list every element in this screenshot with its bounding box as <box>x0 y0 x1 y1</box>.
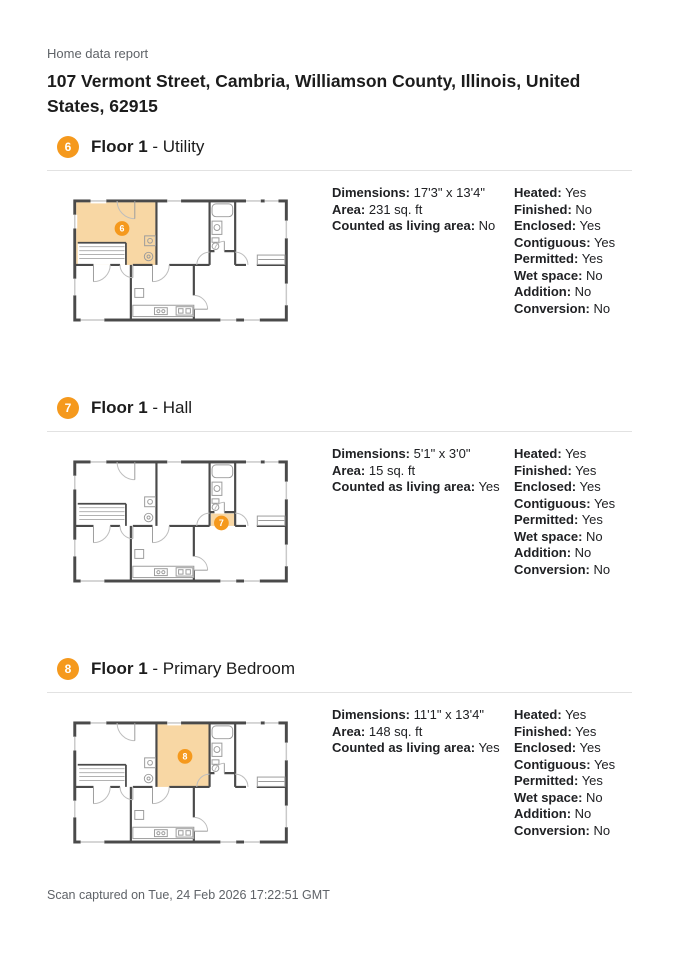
fact-label: Area: <box>332 202 365 217</box>
fact-value: No <box>575 545 592 560</box>
fact-label: Addition: <box>514 806 571 821</box>
fact-row: Area: 15 sq. ft <box>332 463 514 480</box>
fact-value: Yes <box>582 512 603 527</box>
section-title: Floor 1 - Primary Bedroom <box>91 659 295 679</box>
fact-label: Wet space: <box>514 790 582 805</box>
fact-label: Addition: <box>514 284 571 299</box>
section-title-floor: Floor 1 <box>91 137 148 156</box>
fact-row: Conversion: No <box>514 301 632 318</box>
report-label: Home data report <box>47 46 632 62</box>
floor-plan: 6 <box>47 185 332 333</box>
room-flags: Heated: Yes Finished: Yes Enclosed: Yes … <box>514 707 632 855</box>
section-title-floor: Floor 1 <box>91 398 148 417</box>
section-header: 6 Floor 1 - Utility <box>57 136 632 158</box>
address-line-1: 107 Vermont Street, Cambria, Williamson … <box>47 69 647 94</box>
divider <box>47 170 632 171</box>
fact-label: Addition: <box>514 545 571 560</box>
fact-row: Dimensions: 17'3" x 13'4" <box>332 185 514 202</box>
divider <box>47 431 632 432</box>
fact-value: 231 sq. ft <box>369 202 422 217</box>
section-header: 8 Floor 1 - Primary Bedroom <box>57 658 632 680</box>
fact-value: Yes <box>580 218 601 233</box>
section-title-room: - Hall <box>148 398 192 417</box>
fact-row: Permitted: Yes <box>514 512 632 529</box>
fact-label: Dimensions: <box>332 185 410 200</box>
fact-value: Yes <box>575 463 596 478</box>
fact-value: Yes <box>580 740 601 755</box>
fact-row: Finished: Yes <box>514 724 632 741</box>
fact-label: Area: <box>332 724 365 739</box>
fact-label: Wet space: <box>514 268 582 283</box>
fact-row: Wet space: No <box>514 529 632 546</box>
fact-row: Conversion: No <box>514 823 632 840</box>
fact-value: No <box>586 268 603 283</box>
fact-label: Conversion: <box>514 562 590 577</box>
fact-label: Counted as living area: <box>332 479 475 494</box>
section-number-badge: 8 <box>57 658 79 680</box>
floor-plan-image: 7 <box>61 446 307 594</box>
section-title-room: - Primary Bedroom <box>148 659 295 678</box>
fact-value: No <box>575 284 592 299</box>
fact-row: Heated: Yes <box>514 446 632 463</box>
fact-label: Conversion: <box>514 823 590 838</box>
fact-value: Yes <box>582 251 603 266</box>
section-header: 7 Floor 1 - Hall <box>57 397 632 419</box>
fact-label: Permitted: <box>514 251 578 266</box>
fact-value: Yes <box>594 757 615 772</box>
fact-label: Dimensions: <box>332 707 410 722</box>
fact-label: Finished: <box>514 463 572 478</box>
fact-value: No <box>593 301 610 316</box>
floor-plan: 7 <box>47 446 332 594</box>
fact-label: Enclosed: <box>514 218 576 233</box>
section-number-badge: 6 <box>57 136 79 158</box>
svg-text:8: 8 <box>183 752 188 762</box>
fact-row: Finished: No <box>514 202 632 219</box>
fact-label: Wet space: <box>514 529 582 544</box>
fact-value: Yes <box>575 724 596 739</box>
section-title: Floor 1 - Utility <box>91 137 204 157</box>
fact-row: Enclosed: Yes <box>514 218 632 235</box>
fact-label: Contiguous: <box>514 496 591 511</box>
fact-label: Finished: <box>514 202 572 217</box>
fact-value: No <box>593 562 610 577</box>
fact-value: Yes <box>594 235 615 250</box>
fact-value: Yes <box>582 773 603 788</box>
fact-value: Yes <box>565 707 586 722</box>
section-body: 6 Dimensions: 17'3" x 13'4" Area: 231 sq… <box>47 185 632 333</box>
fact-value: 15 sq. ft <box>369 463 415 478</box>
svg-text:6: 6 <box>120 224 125 234</box>
floor-plan: 8 <box>47 707 332 855</box>
section-title-room: - Utility <box>148 137 205 156</box>
room-section-primary-bedroom: 8 Floor 1 - Primary Bedroom 8 Dimensions… <box>47 658 632 855</box>
room-details: Dimensions: 17'3" x 13'4" Area: 231 sq. … <box>332 185 514 333</box>
svg-text:7: 7 <box>219 518 224 528</box>
fact-value: Yes <box>580 479 601 494</box>
fact-row: Permitted: Yes <box>514 251 632 268</box>
fact-row: Addition: No <box>514 284 632 301</box>
fact-label: Heated: <box>514 707 562 722</box>
scan-timestamp: Scan captured on Tue, 24 Feb 2026 17:22:… <box>47 888 632 903</box>
fact-row: Contiguous: Yes <box>514 757 632 774</box>
room-flags: Heated: Yes Finished: Yes Enclosed: Yes … <box>514 446 632 594</box>
fact-label: Conversion: <box>514 301 590 316</box>
floor-plan-svg: 7 <box>61 446 307 594</box>
fact-row: Addition: No <box>514 806 632 823</box>
fact-label: Counted as living area: <box>332 218 475 233</box>
room-details: Dimensions: 5'1" x 3'0" Area: 15 sq. ft … <box>332 446 514 594</box>
fact-row: Heated: Yes <box>514 707 632 724</box>
fact-row: Contiguous: Yes <box>514 235 632 252</box>
floor-plan-image: 8 <box>61 707 307 855</box>
fact-row: Dimensions: 5'1" x 3'0" <box>332 446 514 463</box>
fact-row: Conversion: No <box>514 562 632 579</box>
floor-plan-svg: 6 <box>61 185 307 333</box>
fact-label: Contiguous: <box>514 235 591 250</box>
fact-label: Heated: <box>514 185 562 200</box>
report-page: Home data report 107 Vermont Street, Cam… <box>0 0 679 903</box>
fact-row: Permitted: Yes <box>514 773 632 790</box>
fact-value: Yes <box>565 446 586 461</box>
fact-row: Addition: No <box>514 545 632 562</box>
fact-row: Area: 231 sq. ft <box>332 202 514 219</box>
fact-label: Heated: <box>514 446 562 461</box>
fact-row: Counted as living area: Yes <box>332 479 514 496</box>
fact-row: Wet space: No <box>514 268 632 285</box>
fact-row: Area: 148 sq. ft <box>332 724 514 741</box>
fact-label: Counted as living area: <box>332 740 475 755</box>
fact-row: Counted as living area: Yes <box>332 740 514 757</box>
fact-row: Enclosed: Yes <box>514 479 632 496</box>
section-title: Floor 1 - Hall <box>91 398 192 418</box>
fact-row: Finished: Yes <box>514 463 632 480</box>
fact-label: Dimensions: <box>332 446 410 461</box>
fact-label: Permitted: <box>514 773 578 788</box>
fact-value: 11'1" x 13'4" <box>414 707 484 722</box>
floor-plan-svg: 8 <box>61 707 307 855</box>
fact-row: Counted as living area: No <box>332 218 514 235</box>
section-body: 8 Dimensions: 11'1" x 13'4" Area: 148 sq… <box>47 707 632 855</box>
fact-value: No <box>586 790 603 805</box>
fact-label: Permitted: <box>514 512 578 527</box>
room-flags: Heated: Yes Finished: No Enclosed: Yes C… <box>514 185 632 333</box>
fact-row: Contiguous: Yes <box>514 496 632 513</box>
fact-value: Yes <box>478 740 499 755</box>
floor-plan-image: 6 <box>61 185 307 333</box>
fact-label: Enclosed: <box>514 479 576 494</box>
fact-value: Yes <box>478 479 499 494</box>
fact-value: 5'1" x 3'0" <box>414 446 471 461</box>
fact-label: Area: <box>332 463 365 478</box>
fact-row: Dimensions: 11'1" x 13'4" <box>332 707 514 724</box>
room-section-utility: 6 Floor 1 - Utility 6 Dimensions: 17'3" … <box>47 136 632 333</box>
fact-value: No <box>575 202 592 217</box>
fact-value: 17'3" x 13'4" <box>414 185 485 200</box>
fact-value: 148 sq. ft <box>369 724 422 739</box>
fact-value: Yes <box>565 185 586 200</box>
fact-label: Finished: <box>514 724 572 739</box>
fact-row: Wet space: No <box>514 790 632 807</box>
fact-row: Enclosed: Yes <box>514 740 632 757</box>
fact-value: No <box>593 823 610 838</box>
room-section-hall: 7 Floor 1 - Hall 7 Dimensions: 5'1" x 3'… <box>47 397 632 594</box>
section-title-floor: Floor 1 <box>91 659 148 678</box>
fact-row: Heated: Yes <box>514 185 632 202</box>
room-details: Dimensions: 11'1" x 13'4" Area: 148 sq. … <box>332 707 514 855</box>
divider <box>47 692 632 693</box>
fact-label: Contiguous: <box>514 757 591 772</box>
section-body: 7 Dimensions: 5'1" x 3'0" Area: 15 sq. f… <box>47 446 632 594</box>
fact-label: Enclosed: <box>514 740 576 755</box>
fact-value: No <box>575 806 592 821</box>
address-line-2: States, 62915 <box>47 94 647 119</box>
section-number-badge: 7 <box>57 397 79 419</box>
fact-value: No <box>586 529 603 544</box>
page-title: 107 Vermont Street, Cambria, Williamson … <box>47 69 647 118</box>
fact-value: No <box>479 218 496 233</box>
fact-value: Yes <box>594 496 615 511</box>
